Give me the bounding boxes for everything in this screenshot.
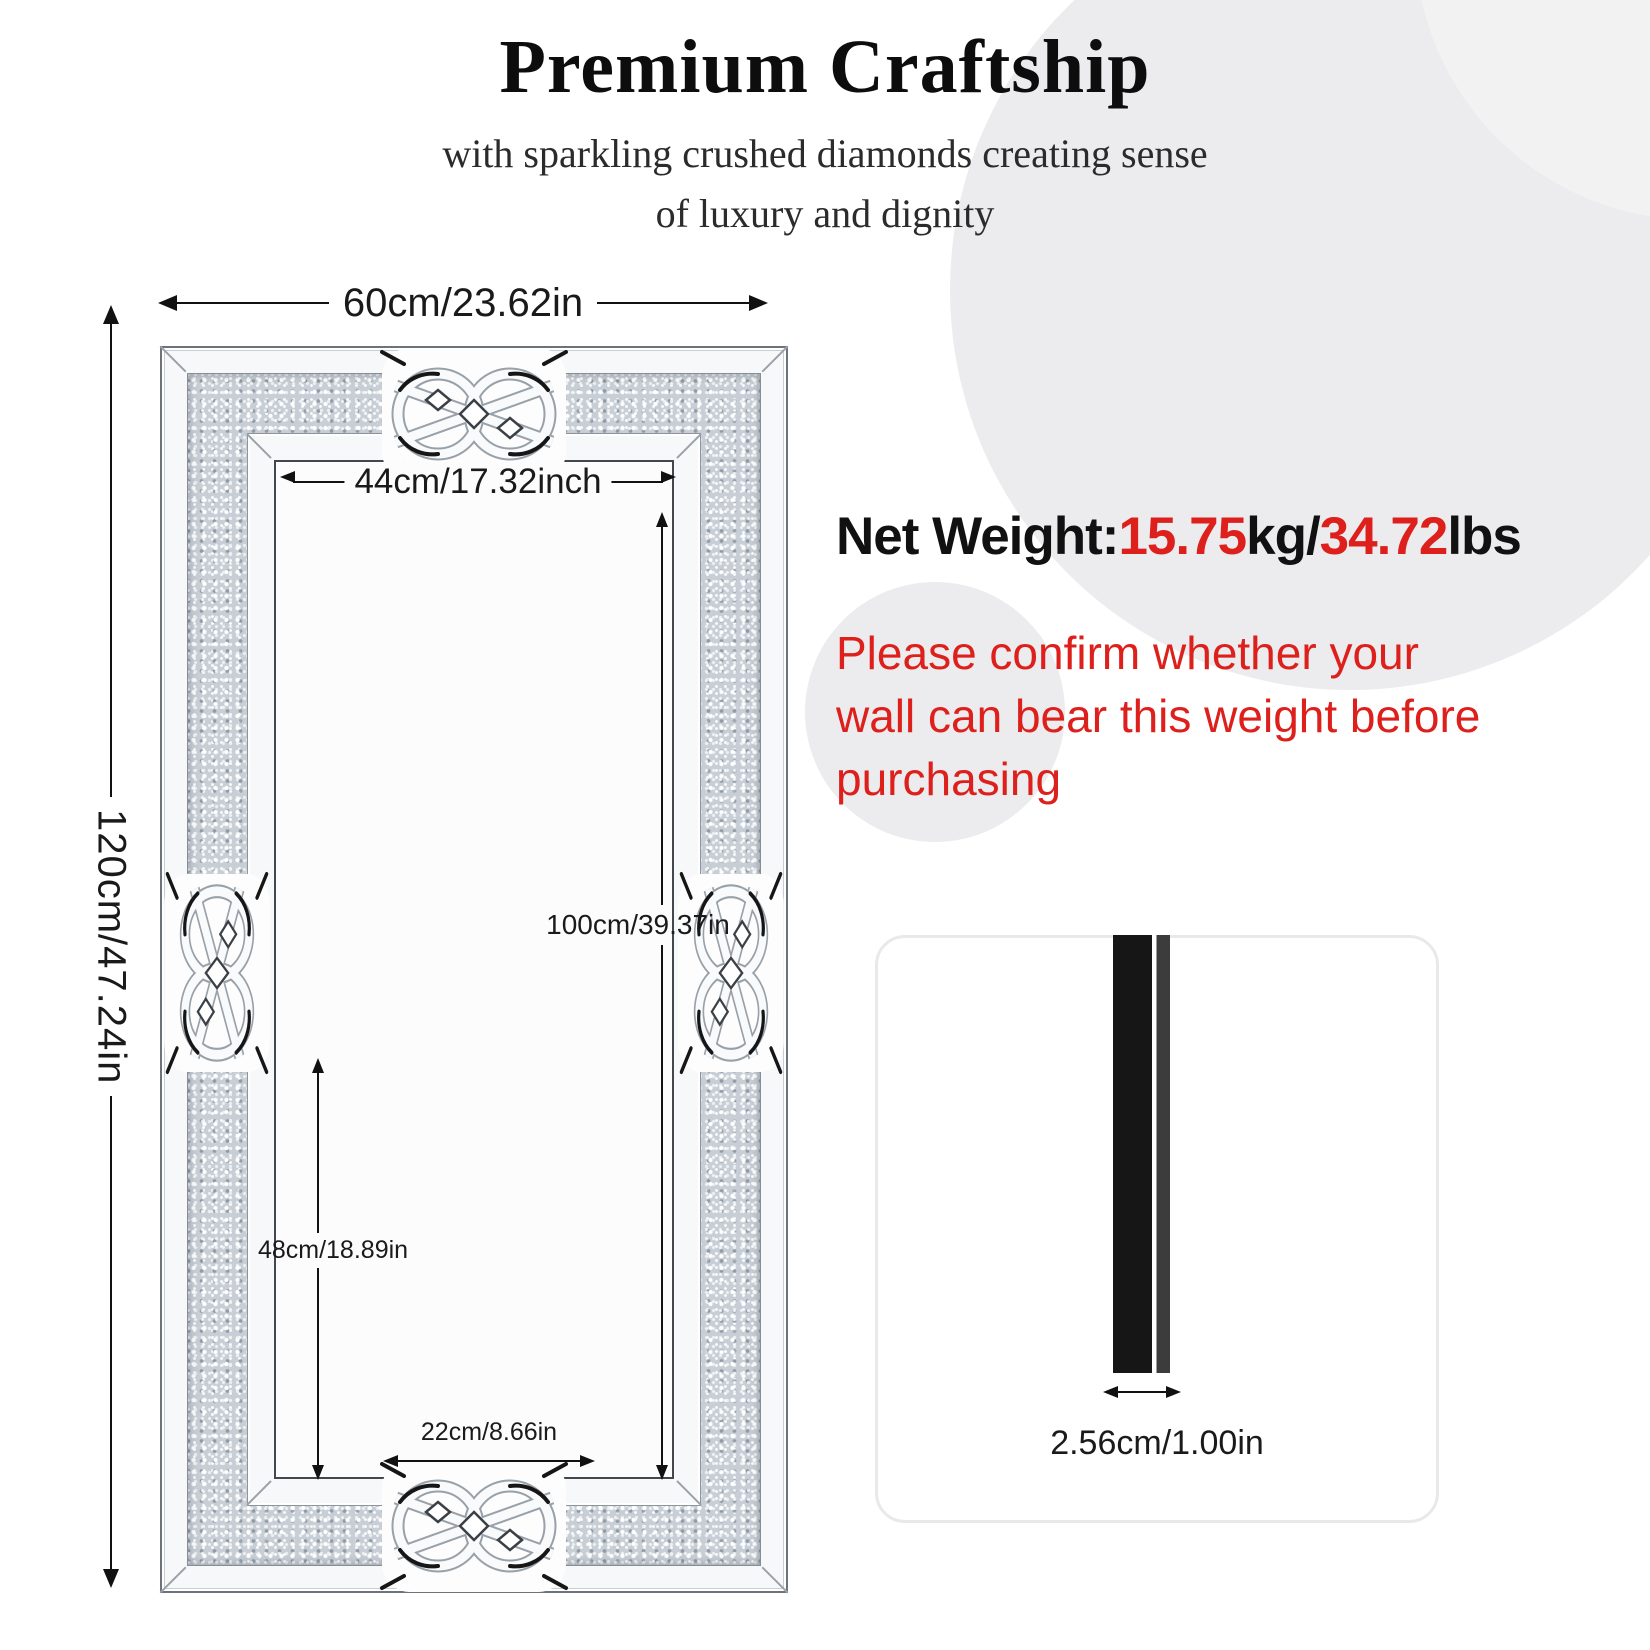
thickness-card-inner: 2.56cm/1.00in (878, 938, 1436, 1520)
net-weight-kg-value: 15.75 (1118, 507, 1246, 566)
net-weight-lbs-value: 34.72 (1320, 507, 1448, 566)
weight-warning: Please confirm whether your wall can bea… (836, 622, 1480, 811)
dimension-inner-width: 44cm/17.32inch (280, 462, 676, 502)
subtitle-line-1: with sparkling crushed diamonds creating… (0, 124, 1650, 184)
dimension-line (317, 1268, 319, 1465)
dimension-lower-inner-height: 48cm/18.89in (306, 1058, 330, 1480)
page-subtitle: with sparkling crushed diamonds creating… (0, 124, 1650, 244)
bottom-inner-width-label: 22cm/8.66in (383, 1418, 595, 1447)
arrowhead-down-icon (312, 1465, 324, 1480)
arrowhead-up-icon (656, 512, 668, 527)
dimension-line (1118, 1391, 1166, 1393)
dimension-line (398, 1460, 580, 1462)
arrowhead-left-icon (280, 471, 295, 483)
arrowhead-right-icon (1166, 1386, 1181, 1398)
mirror-face (274, 460, 674, 1479)
thickness-arrow (1103, 1386, 1181, 1398)
arrowhead-up-icon (103, 305, 119, 324)
subtitle-line-2: of luxury and dignity (0, 184, 1650, 244)
warning-line-2: wall can bear this weight before (836, 685, 1480, 748)
page-title: Premium Craftship (0, 26, 1650, 110)
dimension-line (110, 1096, 112, 1569)
dimension-bottom-inner-width: 22cm/8.66in (383, 1418, 595, 1467)
dimension-overall-height: 120cm/47.24in (93, 305, 129, 1588)
celtic-knot-left-icon (161, 859, 273, 1087)
dimension-line (177, 302, 329, 304)
arrowhead-down-icon (656, 1465, 668, 1480)
net-weight: Net Weight:15.75kg/34.72lbs (836, 506, 1521, 567)
celtic-knot-bottom-icon (368, 1456, 580, 1596)
header: Premium Craftship with sparkling crushed… (0, 26, 1650, 244)
arrowhead-left-icon (1103, 1386, 1118, 1398)
dimension-overall-width: 60cm/23.62in (158, 281, 768, 325)
arrowhead-right-icon (580, 1455, 595, 1467)
dimension-arrow-row (383, 1455, 595, 1467)
overall-width-label: 60cm/23.62in (343, 281, 583, 326)
inner-height-label: 100cm/39.37in (546, 909, 730, 941)
thickness-label: 2.56cm/1.00in (878, 1424, 1436, 1463)
dimension-inner-height: 100cm/39.37in (650, 512, 674, 1480)
product-infographic: Premium Craftship with sparkling crushed… (0, 0, 1650, 1650)
lower-inner-height-label: 48cm/18.89in (258, 1236, 408, 1265)
dimension-line (317, 1073, 319, 1233)
arrowhead-down-icon (103, 1569, 119, 1588)
net-weight-kg-unit: kg/ (1246, 507, 1320, 566)
dimension-line (661, 527, 663, 905)
arrowhead-right-icon (749, 295, 768, 311)
warning-line-3: purchasing (836, 748, 1480, 811)
arrowhead-left-icon (158, 295, 177, 311)
arrowhead-right-icon (661, 471, 676, 483)
overall-height-label: 120cm/47.24in (89, 809, 134, 1084)
inner-width-label: 44cm/17.32inch (344, 462, 611, 502)
dimension-line (110, 324, 112, 797)
thickness-card: 2.56cm/1.00in (875, 935, 1439, 1523)
side-profile-bar (1113, 935, 1170, 1373)
warning-line-1: Please confirm whether your (836, 622, 1480, 685)
arrowhead-left-icon (383, 1455, 398, 1467)
dimension-line (597, 302, 749, 304)
dimension-line (661, 945, 663, 1465)
celtic-knot-right-icon (675, 859, 787, 1087)
arrowhead-up-icon (312, 1058, 324, 1073)
net-weight-label: Net Weight: (836, 507, 1118, 566)
net-weight-lbs-unit: lbs (1447, 507, 1521, 566)
